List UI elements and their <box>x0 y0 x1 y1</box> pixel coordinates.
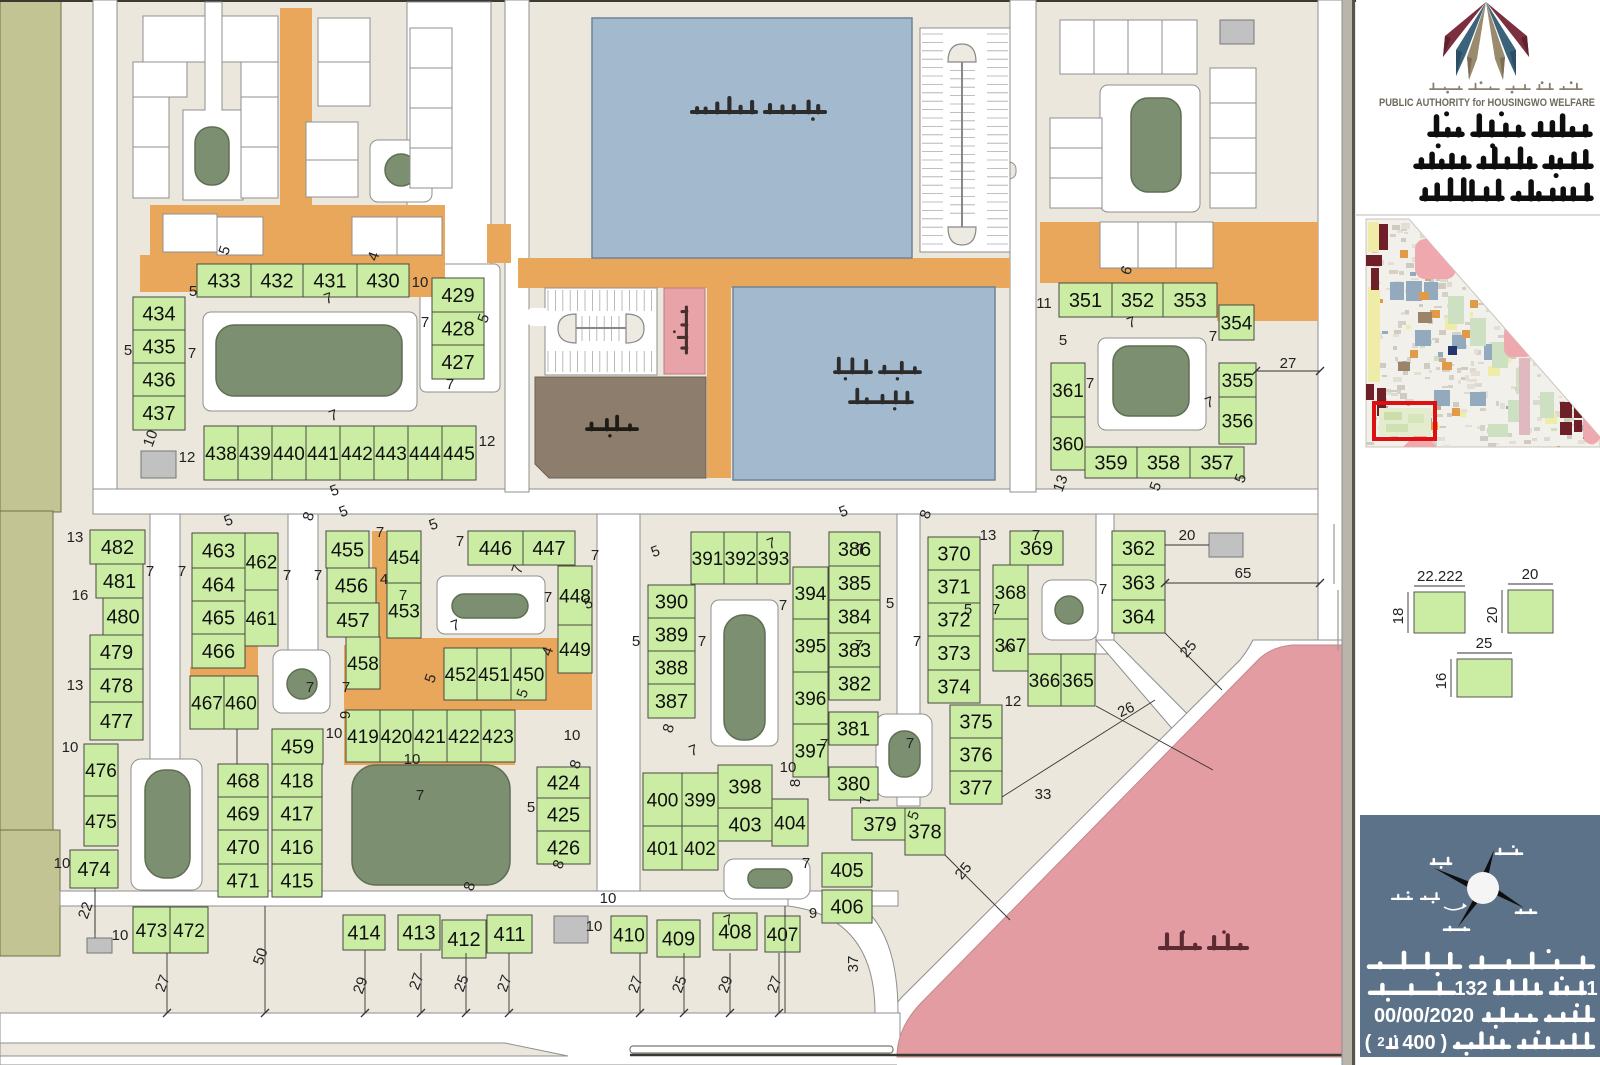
svg-text:7: 7 <box>1086 375 1094 392</box>
svg-text:7: 7 <box>306 679 314 696</box>
svg-text:385: 385 <box>838 573 871 595</box>
svg-text:11: 11 <box>1036 295 1052 312</box>
svg-text:7: 7 <box>178 563 186 580</box>
svg-text:10: 10 <box>780 759 797 776</box>
svg-text:13: 13 <box>67 677 84 694</box>
svg-text:377: 377 <box>959 778 992 800</box>
svg-text:456: 456 <box>335 576 368 598</box>
svg-text:384: 384 <box>838 607 871 629</box>
svg-text:446: 446 <box>479 538 512 560</box>
svg-text:443: 443 <box>375 444 407 465</box>
svg-text:364: 364 <box>1122 607 1155 629</box>
svg-text:452: 452 <box>445 665 477 686</box>
svg-text:351: 351 <box>1069 290 1102 312</box>
svg-text:10: 10 <box>412 274 429 291</box>
svg-text:358: 358 <box>1147 453 1180 475</box>
svg-text:457: 457 <box>336 610 369 632</box>
svg-text:428: 428 <box>441 319 474 341</box>
svg-text:420: 420 <box>381 727 413 748</box>
svg-text:7: 7 <box>421 314 429 331</box>
svg-text:433: 433 <box>207 271 240 293</box>
svg-text:442: 442 <box>341 444 373 465</box>
svg-text:7: 7 <box>399 587 407 604</box>
svg-text:435: 435 <box>142 337 175 359</box>
svg-text:466: 466 <box>202 641 235 663</box>
svg-text:7: 7 <box>779 597 787 614</box>
svg-text:464: 464 <box>202 575 235 597</box>
svg-text:5: 5 <box>527 799 535 816</box>
svg-text:7: 7 <box>591 547 599 564</box>
svg-text:365: 365 <box>1062 671 1094 692</box>
svg-text:429: 429 <box>441 285 474 307</box>
svg-text:419: 419 <box>347 727 379 748</box>
svg-text:389: 389 <box>655 625 688 647</box>
svg-text:453: 453 <box>388 602 420 623</box>
svg-text:7: 7 <box>446 376 454 393</box>
svg-text:2: 2 <box>1377 1034 1384 1049</box>
svg-text:477: 477 <box>100 711 133 733</box>
svg-text:409: 409 <box>662 929 695 951</box>
svg-text:451: 451 <box>478 665 510 686</box>
svg-text:393: 393 <box>758 549 790 570</box>
svg-text:5: 5 <box>632 633 640 650</box>
svg-text:352: 352 <box>1121 290 1154 312</box>
svg-text:480: 480 <box>106 607 139 629</box>
svg-text:7: 7 <box>913 633 921 650</box>
svg-text:5: 5 <box>964 601 972 618</box>
svg-text:437: 437 <box>142 403 175 425</box>
svg-text:7: 7 <box>283 567 291 584</box>
svg-text:356: 356 <box>1222 412 1254 433</box>
svg-text:418: 418 <box>280 771 313 793</box>
svg-text:400: 400 <box>647 791 679 812</box>
svg-text:7: 7 <box>342 679 350 696</box>
svg-text:10: 10 <box>326 725 343 742</box>
svg-text:7: 7 <box>188 345 196 362</box>
svg-text:10: 10 <box>112 927 129 944</box>
svg-text:370: 370 <box>937 544 970 566</box>
svg-text:439: 439 <box>239 444 271 465</box>
svg-text:417: 417 <box>280 804 313 826</box>
svg-text:16: 16 <box>72 587 89 604</box>
svg-text:458: 458 <box>347 654 379 675</box>
svg-text:459: 459 <box>281 737 314 759</box>
svg-text:371: 371 <box>937 577 970 599</box>
svg-text:4: 4 <box>380 571 388 588</box>
svg-text:405: 405 <box>830 860 863 882</box>
svg-text:10: 10 <box>54 855 71 872</box>
svg-text:434: 434 <box>142 304 175 326</box>
svg-text:20: 20 <box>1179 527 1196 544</box>
svg-text:13: 13 <box>67 529 84 546</box>
svg-text:7: 7 <box>698 633 706 650</box>
svg-text:396: 396 <box>795 689 827 710</box>
svg-text:360: 360 <box>1052 435 1084 456</box>
svg-text:12: 12 <box>479 433 496 450</box>
svg-text:7: 7 <box>855 637 863 654</box>
svg-text:388: 388 <box>655 658 688 680</box>
svg-text:25: 25 <box>1476 635 1493 652</box>
svg-text:414: 414 <box>347 923 380 945</box>
svg-text:363: 363 <box>1122 573 1155 595</box>
svg-text:382: 382 <box>838 674 871 696</box>
svg-text:440: 440 <box>273 444 305 465</box>
svg-text:362: 362 <box>1122 538 1155 560</box>
svg-text:7: 7 <box>416 787 424 804</box>
svg-text:381: 381 <box>837 719 870 741</box>
svg-text:7: 7 <box>992 601 1000 618</box>
svg-text:406: 406 <box>830 897 863 919</box>
svg-text:7: 7 <box>146 563 154 580</box>
svg-text:399: 399 <box>684 791 716 812</box>
svg-text:431: 431 <box>313 271 346 293</box>
svg-text:463: 463 <box>202 541 235 563</box>
svg-text:394: 394 <box>795 584 827 605</box>
svg-text:465: 465 <box>202 608 235 630</box>
svg-text:424: 424 <box>547 773 580 795</box>
svg-text:65: 65 <box>1235 565 1252 582</box>
svg-text:430: 430 <box>366 271 399 293</box>
svg-text:379: 379 <box>863 814 896 836</box>
svg-text:398: 398 <box>728 777 761 799</box>
svg-text:7: 7 <box>314 567 322 584</box>
svg-text:5: 5 <box>124 342 132 359</box>
svg-text:380: 380 <box>837 774 870 796</box>
svg-text:374: 374 <box>937 677 970 699</box>
svg-text:7: 7 <box>820 736 828 753</box>
svg-text:132: 132 <box>1454 978 1487 1000</box>
svg-text:12: 12 <box>1005 693 1022 710</box>
svg-text:462: 462 <box>246 553 278 574</box>
svg-text:12: 12 <box>179 449 196 466</box>
svg-text:): ) <box>1441 1032 1448 1054</box>
svg-text:(: ( <box>1365 1032 1372 1054</box>
svg-text:387: 387 <box>655 691 688 713</box>
svg-text:10: 10 <box>586 918 603 935</box>
svg-text:461: 461 <box>246 609 278 630</box>
svg-text:353: 353 <box>1173 290 1206 312</box>
svg-text:354: 354 <box>1221 314 1253 335</box>
svg-text:390: 390 <box>655 592 688 614</box>
svg-text:33: 33 <box>1035 786 1052 803</box>
svg-text:468: 468 <box>226 771 259 793</box>
svg-text:479: 479 <box>100 642 133 664</box>
svg-text:391: 391 <box>692 549 724 570</box>
svg-text:471: 471 <box>226 871 259 893</box>
svg-text:408: 408 <box>718 922 751 944</box>
svg-text:403: 403 <box>728 815 761 837</box>
svg-text:455: 455 <box>331 540 364 562</box>
svg-text:407: 407 <box>767 925 799 946</box>
svg-text:376: 376 <box>959 745 992 767</box>
svg-text:10: 10 <box>404 751 421 768</box>
svg-text:5: 5 <box>886 595 894 612</box>
svg-text:410: 410 <box>613 926 645 947</box>
svg-text:375: 375 <box>959 712 992 734</box>
svg-text:401: 401 <box>647 839 679 860</box>
svg-text:366: 366 <box>1029 671 1061 692</box>
svg-text:7: 7 <box>857 796 874 804</box>
svg-text:478: 478 <box>100 676 133 698</box>
svg-text:7: 7 <box>544 589 552 606</box>
svg-text:413: 413 <box>402 923 435 945</box>
svg-text:470: 470 <box>226 837 259 859</box>
svg-text:8: 8 <box>787 779 804 787</box>
svg-text:402: 402 <box>684 839 716 860</box>
svg-text:9: 9 <box>337 711 354 719</box>
svg-text:416: 416 <box>280 837 313 859</box>
svg-text:469: 469 <box>226 804 259 826</box>
svg-text:7: 7 <box>1099 581 1107 598</box>
svg-text:359: 359 <box>1094 453 1127 475</box>
svg-text:474: 474 <box>77 859 110 881</box>
svg-text:481: 481 <box>103 571 136 593</box>
svg-text:423: 423 <box>482 727 514 748</box>
svg-text:7: 7 <box>906 735 914 752</box>
svg-text:450: 450 <box>513 665 545 686</box>
svg-text:7: 7 <box>802 855 810 872</box>
svg-text:16: 16 <box>1433 673 1450 690</box>
svg-text:425: 425 <box>547 805 580 827</box>
svg-text:378: 378 <box>908 822 941 844</box>
svg-text:475: 475 <box>85 812 117 833</box>
svg-text:438: 438 <box>205 444 237 465</box>
svg-text:10: 10 <box>62 739 79 756</box>
svg-text:357: 357 <box>1200 453 1233 475</box>
svg-text:395: 395 <box>795 637 827 658</box>
svg-text:5: 5 <box>1059 332 1067 349</box>
svg-text:444: 444 <box>409 444 441 465</box>
svg-text:5: 5 <box>189 283 197 300</box>
svg-text:392: 392 <box>725 549 757 570</box>
svg-text:476: 476 <box>85 761 117 782</box>
svg-text:472: 472 <box>173 921 205 942</box>
svg-text:00/00/2020: 00/00/2020 <box>1374 1005 1474 1027</box>
svg-text:473: 473 <box>136 921 168 942</box>
svg-text:404: 404 <box>774 814 806 835</box>
svg-text:373: 373 <box>937 643 970 665</box>
svg-text:412: 412 <box>447 929 480 951</box>
svg-text:460: 460 <box>225 694 257 715</box>
svg-text:426: 426 <box>547 838 580 860</box>
svg-text:37: 37 <box>845 956 862 973</box>
svg-text:PUBLIC AUTHORITY for HOUSINGWO: PUBLIC AUTHORITY for HOUSINGWO WELFARE <box>1379 97 1595 109</box>
svg-text:13: 13 <box>980 527 997 544</box>
svg-text:467: 467 <box>191 694 223 715</box>
svg-text:355: 355 <box>1222 371 1254 392</box>
svg-text:411: 411 <box>494 924 526 946</box>
svg-text:9: 9 <box>809 905 817 922</box>
svg-text:436: 436 <box>142 370 175 392</box>
svg-text:7: 7 <box>456 533 464 550</box>
svg-text:422: 422 <box>448 727 480 748</box>
svg-text:22.222: 22.222 <box>1417 568 1463 585</box>
svg-text:27: 27 <box>1280 355 1297 372</box>
svg-text:20: 20 <box>1484 607 1501 624</box>
svg-text:441: 441 <box>307 444 339 465</box>
svg-text:10: 10 <box>600 890 617 907</box>
svg-text:445: 445 <box>443 444 475 465</box>
svg-text:7: 7 <box>1032 527 1040 544</box>
svg-text:447: 447 <box>532 538 565 560</box>
svg-text:400: 400 <box>1402 1032 1435 1054</box>
svg-text:482: 482 <box>101 537 134 559</box>
svg-text:7: 7 <box>376 524 384 541</box>
svg-text:427: 427 <box>441 352 474 374</box>
svg-text:7: 7 <box>1209 328 1217 345</box>
svg-text:10: 10 <box>564 727 581 744</box>
svg-text:421: 421 <box>414 727 446 748</box>
svg-text:454: 454 <box>388 548 420 569</box>
svg-text:432: 432 <box>260 271 293 293</box>
svg-text:361: 361 <box>1052 381 1084 402</box>
svg-text:20: 20 <box>1522 566 1539 583</box>
svg-text:1: 1 <box>1586 978 1597 1000</box>
svg-text:449: 449 <box>559 640 591 661</box>
svg-text:18: 18 <box>1390 608 1407 625</box>
svg-text:415: 415 <box>280 871 313 893</box>
